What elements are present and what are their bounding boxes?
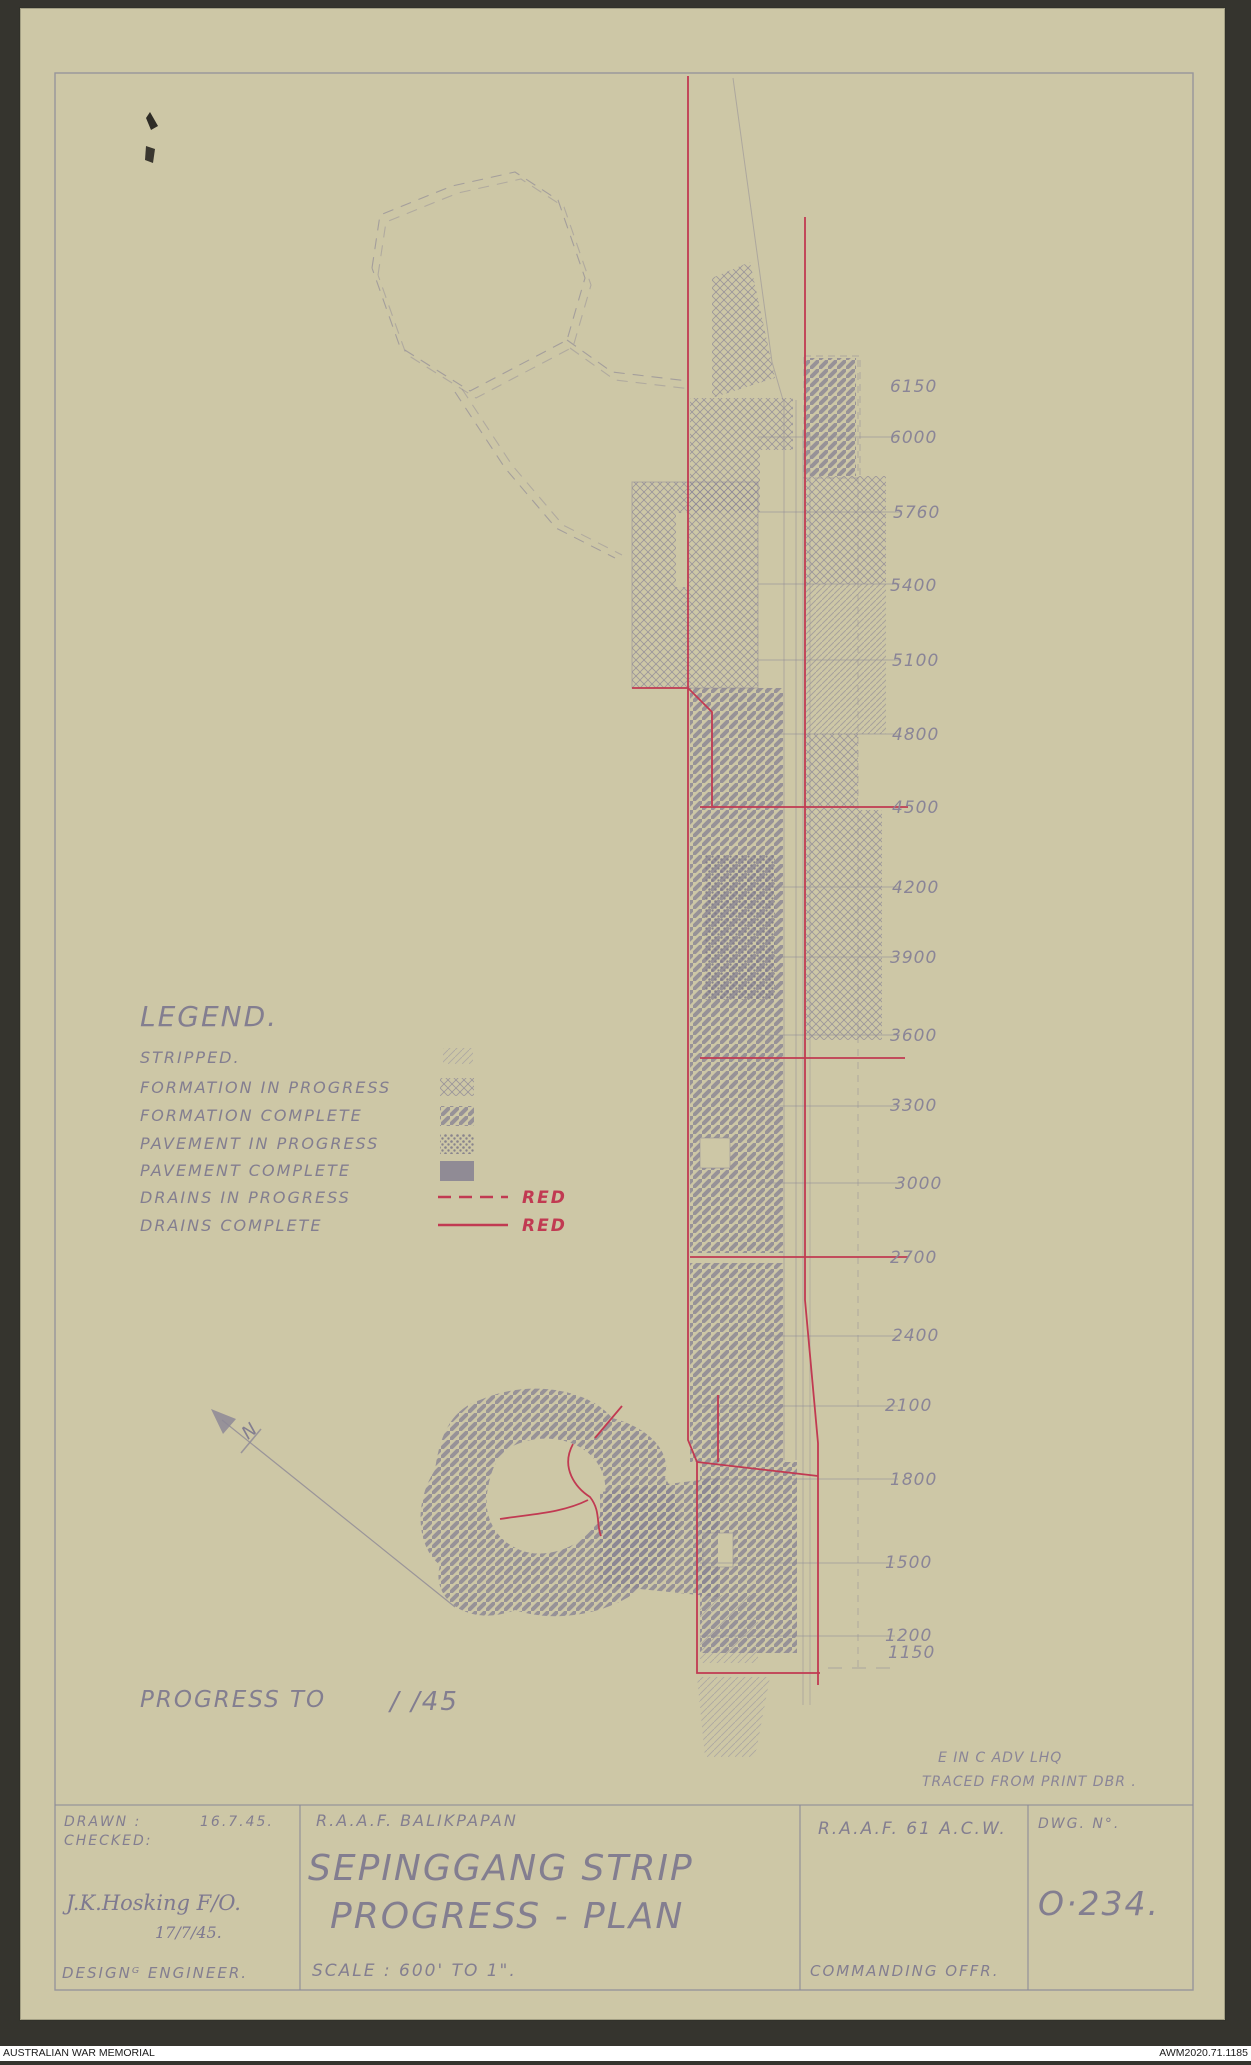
- legend-item-label: PAVEMENT COMPLETE: [140, 1161, 351, 1180]
- legend-swatch-pavement-in-progress: [440, 1134, 474, 1154]
- legend-swatch-formation-in-progress: [440, 1078, 474, 1096]
- legend-red-label-1: RED: [522, 1188, 567, 1208]
- plan-sheet: 6150 6000 5760 5400 5100 4800 4500 4200 …: [0, 0, 1251, 2061]
- legend-item-label: STRIPPED.: [140, 1048, 241, 1067]
- station-label: 2700: [890, 1248, 937, 1268]
- station-label: 4800: [892, 725, 939, 745]
- checked-label: CHECKED:: [64, 1833, 152, 1849]
- archive-footer: AUSTRALIAN WAR MEMORIAL AWM2020.71.1185: [0, 2046, 1251, 2061]
- progress-note: PROGRESS TO / /45: [140, 1687, 459, 1717]
- legend-item-label: PAVEMENT IN PROGRESS: [140, 1134, 379, 1153]
- station-label: 5760: [893, 503, 940, 523]
- legend-swatch-stripped: [443, 1048, 473, 1064]
- station-label: 3900: [890, 948, 937, 968]
- station-label: 1150: [888, 1643, 935, 1663]
- progress-label: PROGRESS TO: [140, 1687, 326, 1713]
- legend-item-label: DRAINS IN PROGRESS: [140, 1188, 351, 1207]
- signature: J.K.Hosking F/O.: [62, 1891, 241, 1915]
- unit: R.A.A.F. 61 A.C.W.: [818, 1819, 1007, 1839]
- drawn-label: DRAWN :: [64, 1814, 141, 1830]
- tracing-note-line1: E IN C ADV LHQ: [938, 1750, 1062, 1766]
- station-label: 4500: [892, 798, 939, 818]
- title-line1: SEPINGGANG STRIP: [308, 1848, 694, 1889]
- legend-item-label: FORMATION COMPLETE: [140, 1106, 363, 1125]
- drawn-date: 16.7.45.: [200, 1814, 274, 1830]
- progress-value: / /45: [388, 1687, 459, 1717]
- tracing-note-line2: TRACED FROM PRINT DBR .: [922, 1774, 1137, 1790]
- title-line2: PROGRESS - PLAN: [330, 1896, 684, 1937]
- legend-swatch-pavement-complete: [440, 1161, 474, 1181]
- station-label: 2400: [892, 1326, 939, 1346]
- archive-footer-right: AWM2020.71.1185: [1159, 2046, 1248, 2061]
- station-label: 1500: [885, 1553, 932, 1573]
- legend-title: LEGEND.: [140, 1000, 278, 1033]
- project: R.A.A.F. BALIKPAPAN: [316, 1811, 518, 1830]
- station-label: 5100: [892, 651, 939, 671]
- station-label: 5400: [890, 576, 937, 596]
- legend-item-label: DRAINS COMPLETE: [140, 1216, 322, 1235]
- station-label: 6150: [890, 377, 937, 397]
- station-label: 4200: [892, 878, 939, 898]
- legend-swatch-formation-complete: [440, 1106, 474, 1126]
- station-label: 1800: [890, 1470, 937, 1490]
- legend-item-label: FORMATION IN PROGRESS: [140, 1078, 391, 1097]
- dwg-label: DWG. N°.: [1038, 1816, 1120, 1832]
- legend-red-label-2: RED: [522, 1216, 567, 1236]
- station-label: 2100: [885, 1396, 932, 1416]
- station-label: 3300: [890, 1096, 937, 1116]
- archive-footer-left: AUSTRALIAN WAR MEMORIAL: [3, 2046, 155, 2061]
- scale: SCALE : 600' TO 1".: [312, 1961, 517, 1981]
- role: DESIGNᴳ ENGINEER.: [62, 1964, 248, 1982]
- station-label: 3600: [890, 1026, 937, 1046]
- officer: COMMANDING OFFR.: [810, 1962, 1000, 1980]
- dwg-number: O·234.: [1038, 1884, 1160, 1923]
- signature-date: 17/7/45.: [155, 1923, 222, 1942]
- station-label: 3000: [895, 1174, 942, 1194]
- station-label: 6000: [890, 428, 937, 448]
